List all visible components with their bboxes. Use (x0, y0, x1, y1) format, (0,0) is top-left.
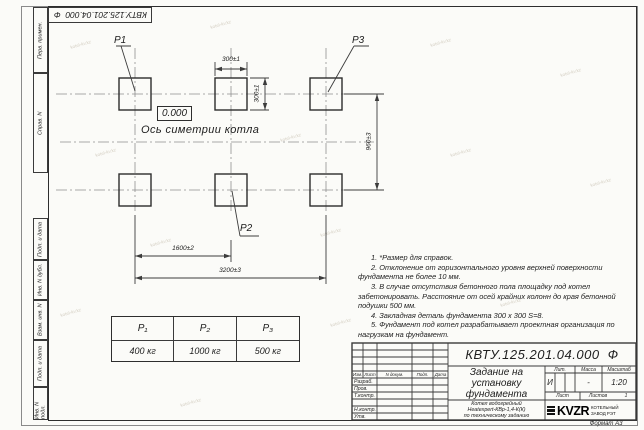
row-utv: Утв. (352, 413, 377, 420)
load-table-value: 1000 кг (174, 341, 236, 361)
margin-box-inv-podl: Инв. N подл. (33, 387, 48, 420)
load-table-value: 500 кг (237, 341, 299, 361)
row-nkontr: Н.контр. (352, 406, 377, 413)
margin-box-inv-dubl: Инв. N дубл. (33, 260, 48, 300)
margin-box-podp-data-1: Подп. и дата (33, 218, 48, 260)
scale-value: 1:20 (602, 373, 636, 392)
sheets-label: Листов (580, 392, 616, 400)
col-podp: Подп. (412, 371, 433, 378)
margin-label: Перв. примен. (34, 8, 47, 72)
load-table-header: P₁ (112, 317, 174, 341)
format-label: Формат А3 (576, 420, 636, 428)
margin-label: Взам. инв. N (34, 301, 47, 339)
note-line: 1. *Размер для справок. (358, 253, 640, 263)
company-line: КОТЕЛЬНЫЙ (591, 405, 619, 410)
margin-label: Инв. N дубл. (34, 261, 47, 299)
mass-value: - (575, 373, 602, 392)
load-table-header: P₂ (174, 317, 236, 341)
col-izm: Изм. (352, 371, 363, 378)
row-razrab: Разраб. (352, 378, 377, 385)
margin-box-podp-data-2: Подп. и дата (33, 340, 48, 387)
sheets-value: 1 (616, 392, 636, 400)
margin-box-perv-primen: Перв. примен. (33, 7, 48, 73)
sheet-label: Лист (545, 392, 580, 400)
note-line: 4. Закладная деталь фундамента 300 х 300… (358, 311, 640, 321)
margin-label: Подп. и дата (34, 219, 47, 259)
margin-box-vzam-inv: Взам. инв. N (33, 300, 48, 340)
corner-stamp-text: КВТУ.125.201.04.000 Ф (54, 10, 147, 20)
elevation-value: 0.000 (162, 108, 187, 119)
margin-label: Инв. N подл. (34, 388, 47, 419)
product-line: по техническому заданию (450, 413, 543, 419)
title-line: фундамента (450, 389, 543, 400)
point-label-p2: P2 (240, 223, 252, 234)
row-prov: Пров. (352, 385, 377, 392)
corner-stamp: КВТУ.125.201.04.000 Ф (48, 7, 152, 23)
col-list: Лист (363, 371, 377, 378)
company-name: КОТЕЛЬНЫЙ ЗАВОД РЭТ (591, 405, 619, 415)
product-name: Котел водогрейный Heatexpert-КВр-1,4-К(К… (450, 401, 543, 420)
dim-height-300: 300±1 (254, 79, 261, 109)
margin-label: Справ. N (34, 74, 47, 172)
dim-total-3200: 3200±3 (205, 267, 255, 274)
load-table-header: P₃ (237, 317, 299, 341)
dim-colgap-1600: 1600±2 (158, 245, 208, 252)
lit-label: Лит. (545, 366, 575, 373)
title-line: установку (450, 378, 543, 389)
kvzr-logo-icon (547, 406, 555, 415)
note-line: 2. Отклонение от горизонтального уровня … (358, 263, 640, 282)
elevation-mark: 0.000 (157, 106, 192, 121)
col-data: Дата (433, 371, 448, 378)
company-logo: KVZR КОТЕЛЬНЫЙ ЗАВОД РЭТ (547, 402, 635, 419)
load-table: P₁ P₂ P₃ 400 кг 1000 кг 500 кг (111, 316, 300, 362)
row-tkontr: Т.контр. (352, 392, 377, 399)
dim-width-300: 300±1 (206, 56, 256, 63)
title-block-doc-number: КВТУ.125.201.04.000 Ф (448, 344, 636, 365)
title-line: Задание на (450, 367, 543, 378)
point-label-p3: P3 (352, 35, 364, 46)
point-label-p1: P1 (114, 35, 126, 46)
note-line: 5. Фундамент под котел разрабатывает про… (358, 320, 640, 339)
note-line: 3. В случае отсутствия бетонного пола пл… (358, 282, 640, 311)
dim-rowgap-960: 960±3 (366, 125, 373, 159)
drawing-sheet: kotel-kv.kz kotel-kv.kz kotel-kv.kz kote… (0, 0, 644, 430)
margin-label: Подп. и дата (34, 341, 47, 386)
margin-box-sprav-n: Справ. N (33, 73, 48, 173)
company-line: ЗАВОД РЭТ (591, 411, 619, 416)
scale-label: Масштаб (602, 366, 636, 373)
lit-value: И (545, 373, 555, 392)
notes-block: 1. *Размер для справок. 2. Отклонение от… (358, 253, 640, 340)
kvzr-logo-text: KVZR (557, 404, 589, 418)
title-block-title: Задание на установку фундамента (450, 367, 543, 400)
load-table-value: 400 кг (112, 341, 174, 361)
symmetry-axis-label: Ось симетрии котла (141, 124, 259, 136)
col-docnum: N докум. (377, 371, 412, 378)
mass-label: Масса (575, 366, 602, 373)
